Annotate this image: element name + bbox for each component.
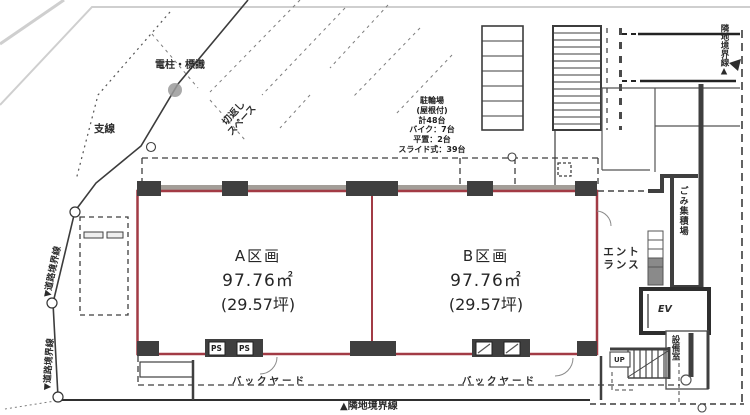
- boundary-point-marker: [147, 143, 156, 152]
- unit-a-area-sqm: 97.76㎡: [193, 266, 323, 291]
- unit-a-name: A区画: [193, 245, 323, 266]
- neighbor-boundary-bottom-label: ▲隣地境界線: [340, 401, 398, 413]
- stairs-up-label: UP: [614, 356, 625, 364]
- bike-note-line6: スライド式：39台: [384, 145, 480, 155]
- backyard-label-a: バックヤード: [232, 376, 307, 387]
- backyard-dashed-lines: [138, 356, 680, 400]
- bike-note-line3: 計48台: [384, 116, 480, 126]
- bike-note-line5: 平置：2台: [384, 135, 480, 145]
- unit-a-area-tsubo: (29.57坪): [193, 291, 323, 315]
- sheet-border-lines: [0, 0, 750, 105]
- bike-rack-icons: [482, 26, 601, 188]
- adjacent-building-lines: [602, 88, 740, 172]
- plan-linework: [0, 0, 750, 415]
- entrance-label: エント ランス: [598, 246, 646, 272]
- floor-plan: 電柱・標識 支線 切返し スペース 駐輪場 (屋根付) 計48台 バイク：7台 …: [0, 0, 750, 415]
- neighbor-boundary-right-label: 隣地境界線▲: [719, 24, 729, 76]
- entrance-line2: ランス: [598, 259, 646, 272]
- unit-a-label: A区画 97.76㎡ (29.57坪): [193, 245, 323, 315]
- unit-b-area-sqm: 97.76㎡: [421, 266, 551, 291]
- backyard-label-b: バックヤード: [462, 376, 537, 387]
- bike-note-line4: バイク：7台: [384, 125, 480, 135]
- ps-label-1: PS: [211, 344, 222, 353]
- unit-b-area-tsubo: (29.57坪): [421, 291, 551, 315]
- bike-parking-note: 駐輪場 (屋根付) 計48台 バイク：7台 平置：2台 スライド式：39台: [384, 96, 480, 155]
- branch-wire-label: 支線: [94, 123, 115, 135]
- bike-note-line1: 駐輪場: [384, 96, 480, 106]
- ps-label-2: PS: [239, 344, 250, 353]
- unit-b-label: B区画 97.76㎡ (29.57坪): [421, 245, 551, 315]
- entrance-steps-icon: [648, 231, 663, 285]
- bike-note-line2: (屋根付): [384, 106, 480, 116]
- utility-pole-icon: [168, 83, 182, 97]
- entrance-line1: エント: [598, 246, 646, 259]
- equipment-room-label: 設備室: [670, 335, 680, 375]
- left-parking-stall: [80, 217, 128, 315]
- pole-sign-label: 電柱・標識: [145, 60, 215, 72]
- garbage-area-label: ごみ集積場: [677, 186, 688, 282]
- unit-b-name: B区画: [421, 245, 551, 266]
- elevator-shaft: [641, 289, 709, 333]
- elevator-label: EV: [658, 304, 672, 315]
- boundary-point-marker-2: [508, 153, 516, 161]
